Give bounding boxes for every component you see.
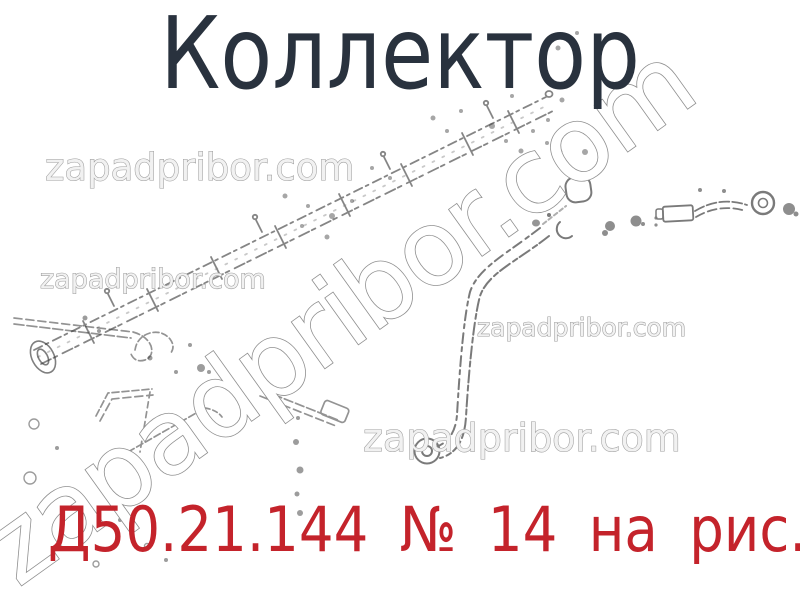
watermark-text: zapadpribor.com (40, 264, 266, 295)
part-number-caption: Д50.21.144 № 14 на рис. (48, 499, 752, 561)
page: zapadpribor.com zapadpribor.com zapadpri… (0, 0, 800, 600)
watermark-text: zapadpribor.com (45, 146, 354, 189)
page-title: Коллектор (60, 4, 740, 104)
watermark-text: zapadpribor.com (477, 313, 686, 342)
watermark-text: zapadpribor.com (363, 416, 681, 460)
